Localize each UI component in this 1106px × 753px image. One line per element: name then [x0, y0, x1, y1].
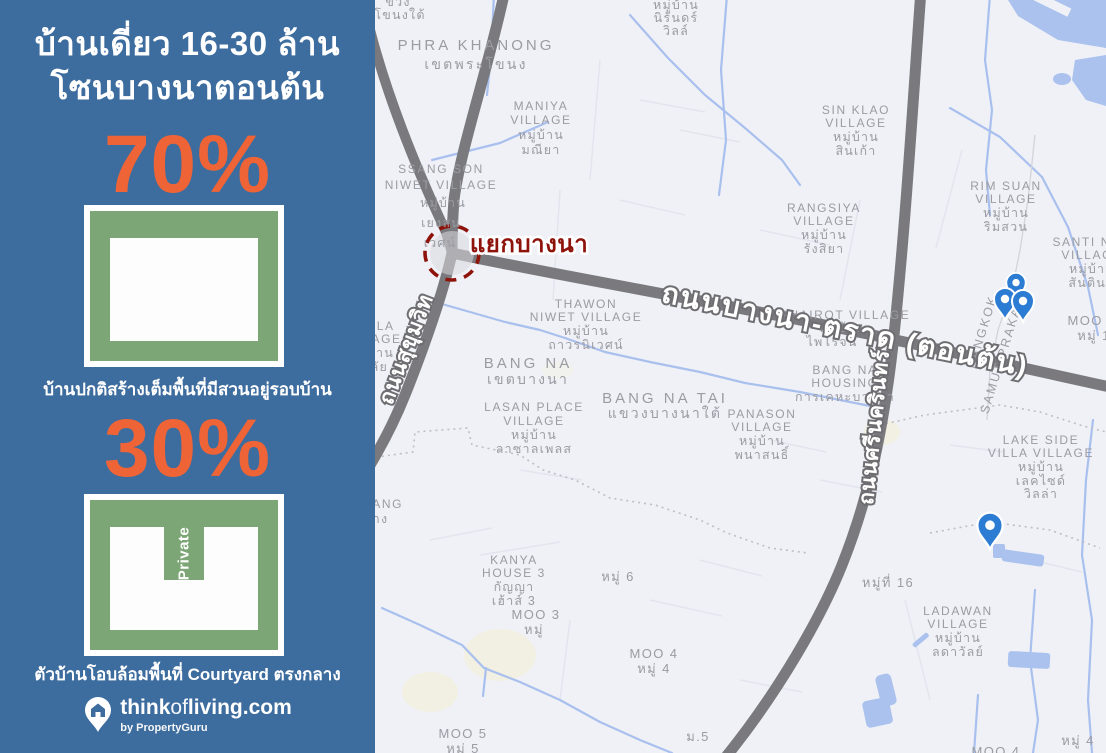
label-line: มณียา [522, 143, 561, 157]
label-line: สันตินค [1068, 276, 1106, 290]
logo-of: of [170, 696, 188, 719]
stat-30-percent: 30% [0, 408, 375, 490]
label-line: ลาซาลเพลส [496, 442, 572, 456]
label-line: MOO 1 [1068, 313, 1106, 328]
label-line: LADAWAN [923, 604, 993, 618]
label-line: MOO 3 [512, 607, 561, 622]
label-line: เยงสน [421, 216, 461, 230]
logo-wordmark-block: thinkofliving.com by PropertyGuru [120, 697, 292, 734]
label-line: RANGSIYA [787, 201, 861, 215]
label-line: HOUSE 3 [482, 566, 546, 580]
label-line: SIN KLAO [822, 103, 890, 117]
stat-70-caption: บ้านปกติสร้างเต็มพื้นที่มีสวนอยู่รอบบ้าน [0, 376, 375, 403]
label-line: VILLAGE [510, 113, 571, 127]
label-line: VILLAGE [731, 420, 792, 434]
label-line: กัญญา [494, 580, 535, 594]
label-line: รังสิยา [804, 242, 845, 256]
label-line: นิรันดร์ [654, 11, 699, 25]
house-footprint [110, 238, 258, 341]
logo-wordmark: thinkofliving.com [120, 696, 292, 719]
label-m5: ม.5 [686, 729, 710, 744]
title-line-2: โซนบางนาตอนต้น [0, 66, 375, 110]
label-line: SAWANG [375, 497, 403, 511]
label-line: สว่าง [375, 512, 388, 526]
label-line: KANYA [490, 553, 538, 567]
label-moo4-bottom: MOO 4 [972, 744, 1021, 753]
label-moo4-right: หมู่ 4 [1061, 733, 1095, 749]
label-line: เลคไซด์ [1016, 474, 1066, 488]
label-line: NIWET VILLAGE [530, 310, 643, 324]
stat-70-percent: 70% [0, 124, 375, 206]
label-line: หมู่บ้าน [833, 130, 879, 145]
label-line: สินเก้า [835, 144, 876, 158]
label-line: วิลล์ [663, 24, 689, 38]
label-line: SSANG SON [398, 162, 484, 176]
label-bang-na: BANG NAเขตบางนา [484, 355, 573, 387]
house-footprint-courtyard: Private [110, 527, 258, 630]
label-line: LASAN PLACE [484, 400, 584, 414]
label-bang-na-tai: BANG NA TAIแขวงบางนาใต้ [602, 390, 728, 421]
label-line: ริมสวน [984, 220, 1028, 234]
brand-logo: thinkofliving.com by PropertyGuru [0, 697, 375, 734]
label-line: เฮ้าส์ 3 [492, 594, 536, 608]
label-line: VILLAGE [503, 414, 564, 428]
title-line-1: บ้านเดี่ยว 16-30 ล้าน [0, 22, 375, 66]
label-line: เขตบางนา [487, 371, 569, 387]
diagram-full-plot-house [84, 205, 284, 367]
label-line: หมู่บ้าน [511, 428, 557, 443]
logo-byline: by PropertyGuru [120, 722, 292, 734]
junction-label: แยกบางนา [470, 231, 588, 258]
label-line: VILLAGE [1061, 248, 1106, 262]
label-line: เขตพระโขนง [424, 56, 527, 72]
logo-living: living [188, 696, 243, 719]
label-line: หมู่บ้าน [420, 196, 466, 211]
label-line: ถาวรนิเวศน์ [548, 338, 623, 352]
logo-pin-house-icon [83, 697, 113, 733]
label-line: MANIYA [514, 99, 569, 113]
label-line: NIWET VILLAGE [385, 178, 498, 192]
label-line: หมู่ 4 [637, 661, 671, 677]
label-line: VILLAGE [793, 214, 854, 228]
label-line: แขวงบางนาใต้ [608, 405, 722, 421]
label-line: SANTI NOK [1052, 235, 1106, 249]
label-line: หมู่บ้าน [1069, 262, 1106, 277]
label-line: หมู่บ้าน [935, 631, 981, 646]
label-line: PHRA KHANONG [398, 37, 555, 54]
info-panel: บ้านเดี่ยว 16-30 ล้าน โซนบางนาตอนต้น 70%… [0, 0, 375, 753]
courtyard-notch: Private [164, 527, 204, 580]
label-line: เวศน์ [424, 236, 457, 250]
label-line: VILLAGE [927, 617, 988, 631]
courtyard-private-label: Private [176, 527, 193, 581]
label-line: หมู่ 5 [446, 741, 480, 753]
label-line: VILLA VILLAGE [988, 446, 1094, 460]
label-line: หมู่บ้าน [739, 434, 785, 449]
label-line: THAWON [555, 297, 617, 311]
infographic-stage: ขวงโขนงใต้ PHRA KHANONGเขตพระโขนง MANIYA… [0, 0, 1106, 753]
label-line: หมู่ [524, 622, 544, 638]
label-line: หมู่ 1 [1077, 328, 1106, 344]
page-title: บ้านเดี่ยว 16-30 ล้าน โซนบางนาตอนต้น [0, 22, 375, 109]
label-line: หมู่บ้าน [518, 128, 564, 143]
label-line: VILLAGE [825, 116, 886, 130]
label-line: หมู่บ้าน [563, 324, 609, 339]
map-svg[interactable]: ขวงโขนงใต้ PHRA KHANONGเขตพระโขนง MANIYA… [375, 0, 1106, 753]
label-line: LAKE SIDE [1003, 433, 1079, 447]
label-line: หมู่บ้าน [801, 228, 847, 243]
label-line: PHALA [375, 319, 395, 333]
label-line: VILLAGE [975, 192, 1036, 206]
stat-30-caption: ตัวบ้านโอบล้อมพื้นที่ Courtyard ตรงกลาง [0, 661, 375, 688]
label-line: BANG NA [484, 355, 573, 372]
label-line: PANASON [728, 407, 797, 421]
logo-think: think [120, 696, 170, 719]
map-canvas[interactable]: ขวงโขนงใต้ PHRA KHANONGเขตพระโขนง MANIYA… [375, 0, 1106, 753]
diagram-courtyard-house: Private [84, 494, 284, 656]
label-moo6: หมู่ 6 [601, 569, 635, 585]
label-line: MOO 5 [439, 726, 488, 741]
label-line: โขนงใต้ [375, 7, 426, 22]
label-line: พนาสนธิ์ [735, 445, 790, 462]
label-line: วิลล่า [1024, 487, 1058, 501]
label-moo16: หมู่ที่ 16 [862, 574, 914, 591]
label-line: MOO 4 [630, 646, 679, 661]
label-line: RIM SUAN [970, 179, 1041, 193]
label-line: หมู่บ้าน [1018, 460, 1064, 475]
logo-dotcom: .com [243, 696, 292, 719]
label-line: หมู่บ้าน [983, 206, 1029, 221]
label-line: ลดาวัลย์ [932, 645, 984, 659]
